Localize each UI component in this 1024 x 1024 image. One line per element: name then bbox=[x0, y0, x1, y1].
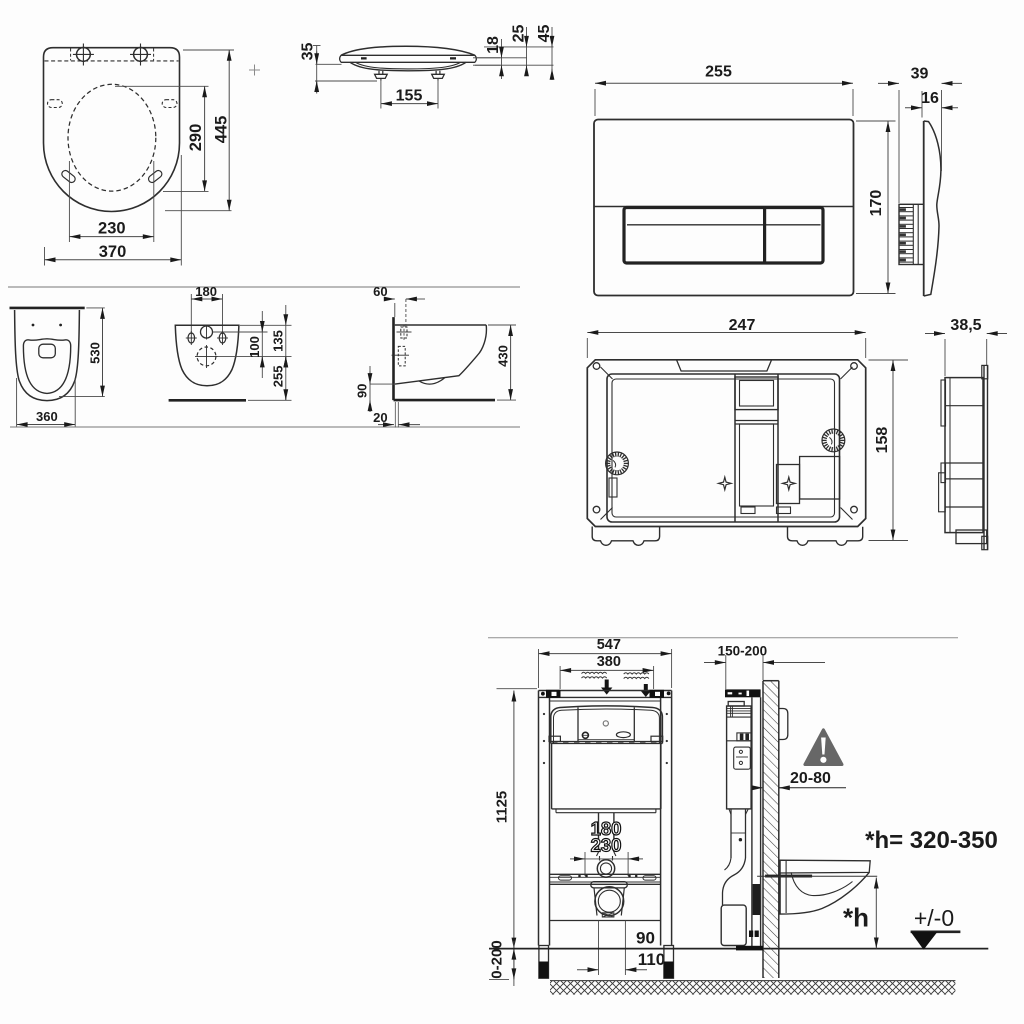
svg-text:155: 155 bbox=[396, 87, 423, 104]
svg-text:247: 247 bbox=[729, 317, 756, 334]
svg-text:60: 60 bbox=[373, 284, 387, 299]
svg-text:170: 170 bbox=[868, 190, 885, 217]
svg-text:*h: *h bbox=[843, 903, 869, 933]
svg-text:45: 45 bbox=[536, 25, 553, 43]
svg-text:16: 16 bbox=[921, 90, 939, 107]
svg-text:230: 230 bbox=[591, 835, 622, 856]
svg-text:430: 430 bbox=[495, 345, 510, 367]
svg-text:445: 445 bbox=[213, 116, 231, 144]
svg-text:370: 370 bbox=[99, 243, 127, 261]
svg-text:90: 90 bbox=[355, 384, 370, 398]
svg-text:547: 547 bbox=[597, 637, 621, 653]
svg-text:38,5: 38,5 bbox=[950, 317, 981, 334]
svg-text:360: 360 bbox=[36, 409, 58, 424]
svg-text:39: 39 bbox=[911, 65, 929, 82]
svg-text:0-200: 0-200 bbox=[488, 940, 505, 978]
svg-text:290: 290 bbox=[187, 124, 205, 152]
svg-text:+/-0: +/-0 bbox=[914, 905, 954, 931]
svg-text:*h= 320-350: *h= 320-350 bbox=[865, 827, 998, 854]
svg-text:20-80: 20-80 bbox=[790, 770, 831, 787]
svg-text:135: 135 bbox=[270, 330, 285, 352]
svg-text:20: 20 bbox=[373, 410, 387, 425]
svg-text:255: 255 bbox=[270, 366, 285, 388]
svg-text:1125: 1125 bbox=[493, 791, 510, 824]
svg-text:18: 18 bbox=[485, 36, 502, 54]
svg-text:530: 530 bbox=[87, 342, 102, 364]
svg-text:35: 35 bbox=[300, 43, 317, 61]
svg-text:158: 158 bbox=[874, 427, 891, 454]
svg-text:380: 380 bbox=[597, 654, 621, 670]
svg-text:230: 230 bbox=[98, 220, 126, 238]
svg-text:255: 255 bbox=[705, 63, 732, 80]
svg-text:25: 25 bbox=[510, 25, 527, 43]
svg-text:180: 180 bbox=[195, 284, 217, 299]
svg-text:110: 110 bbox=[638, 950, 665, 969]
svg-text:90: 90 bbox=[636, 928, 655, 947]
svg-text:150-200: 150-200 bbox=[718, 643, 768, 658]
svg-text:100: 100 bbox=[247, 336, 262, 358]
